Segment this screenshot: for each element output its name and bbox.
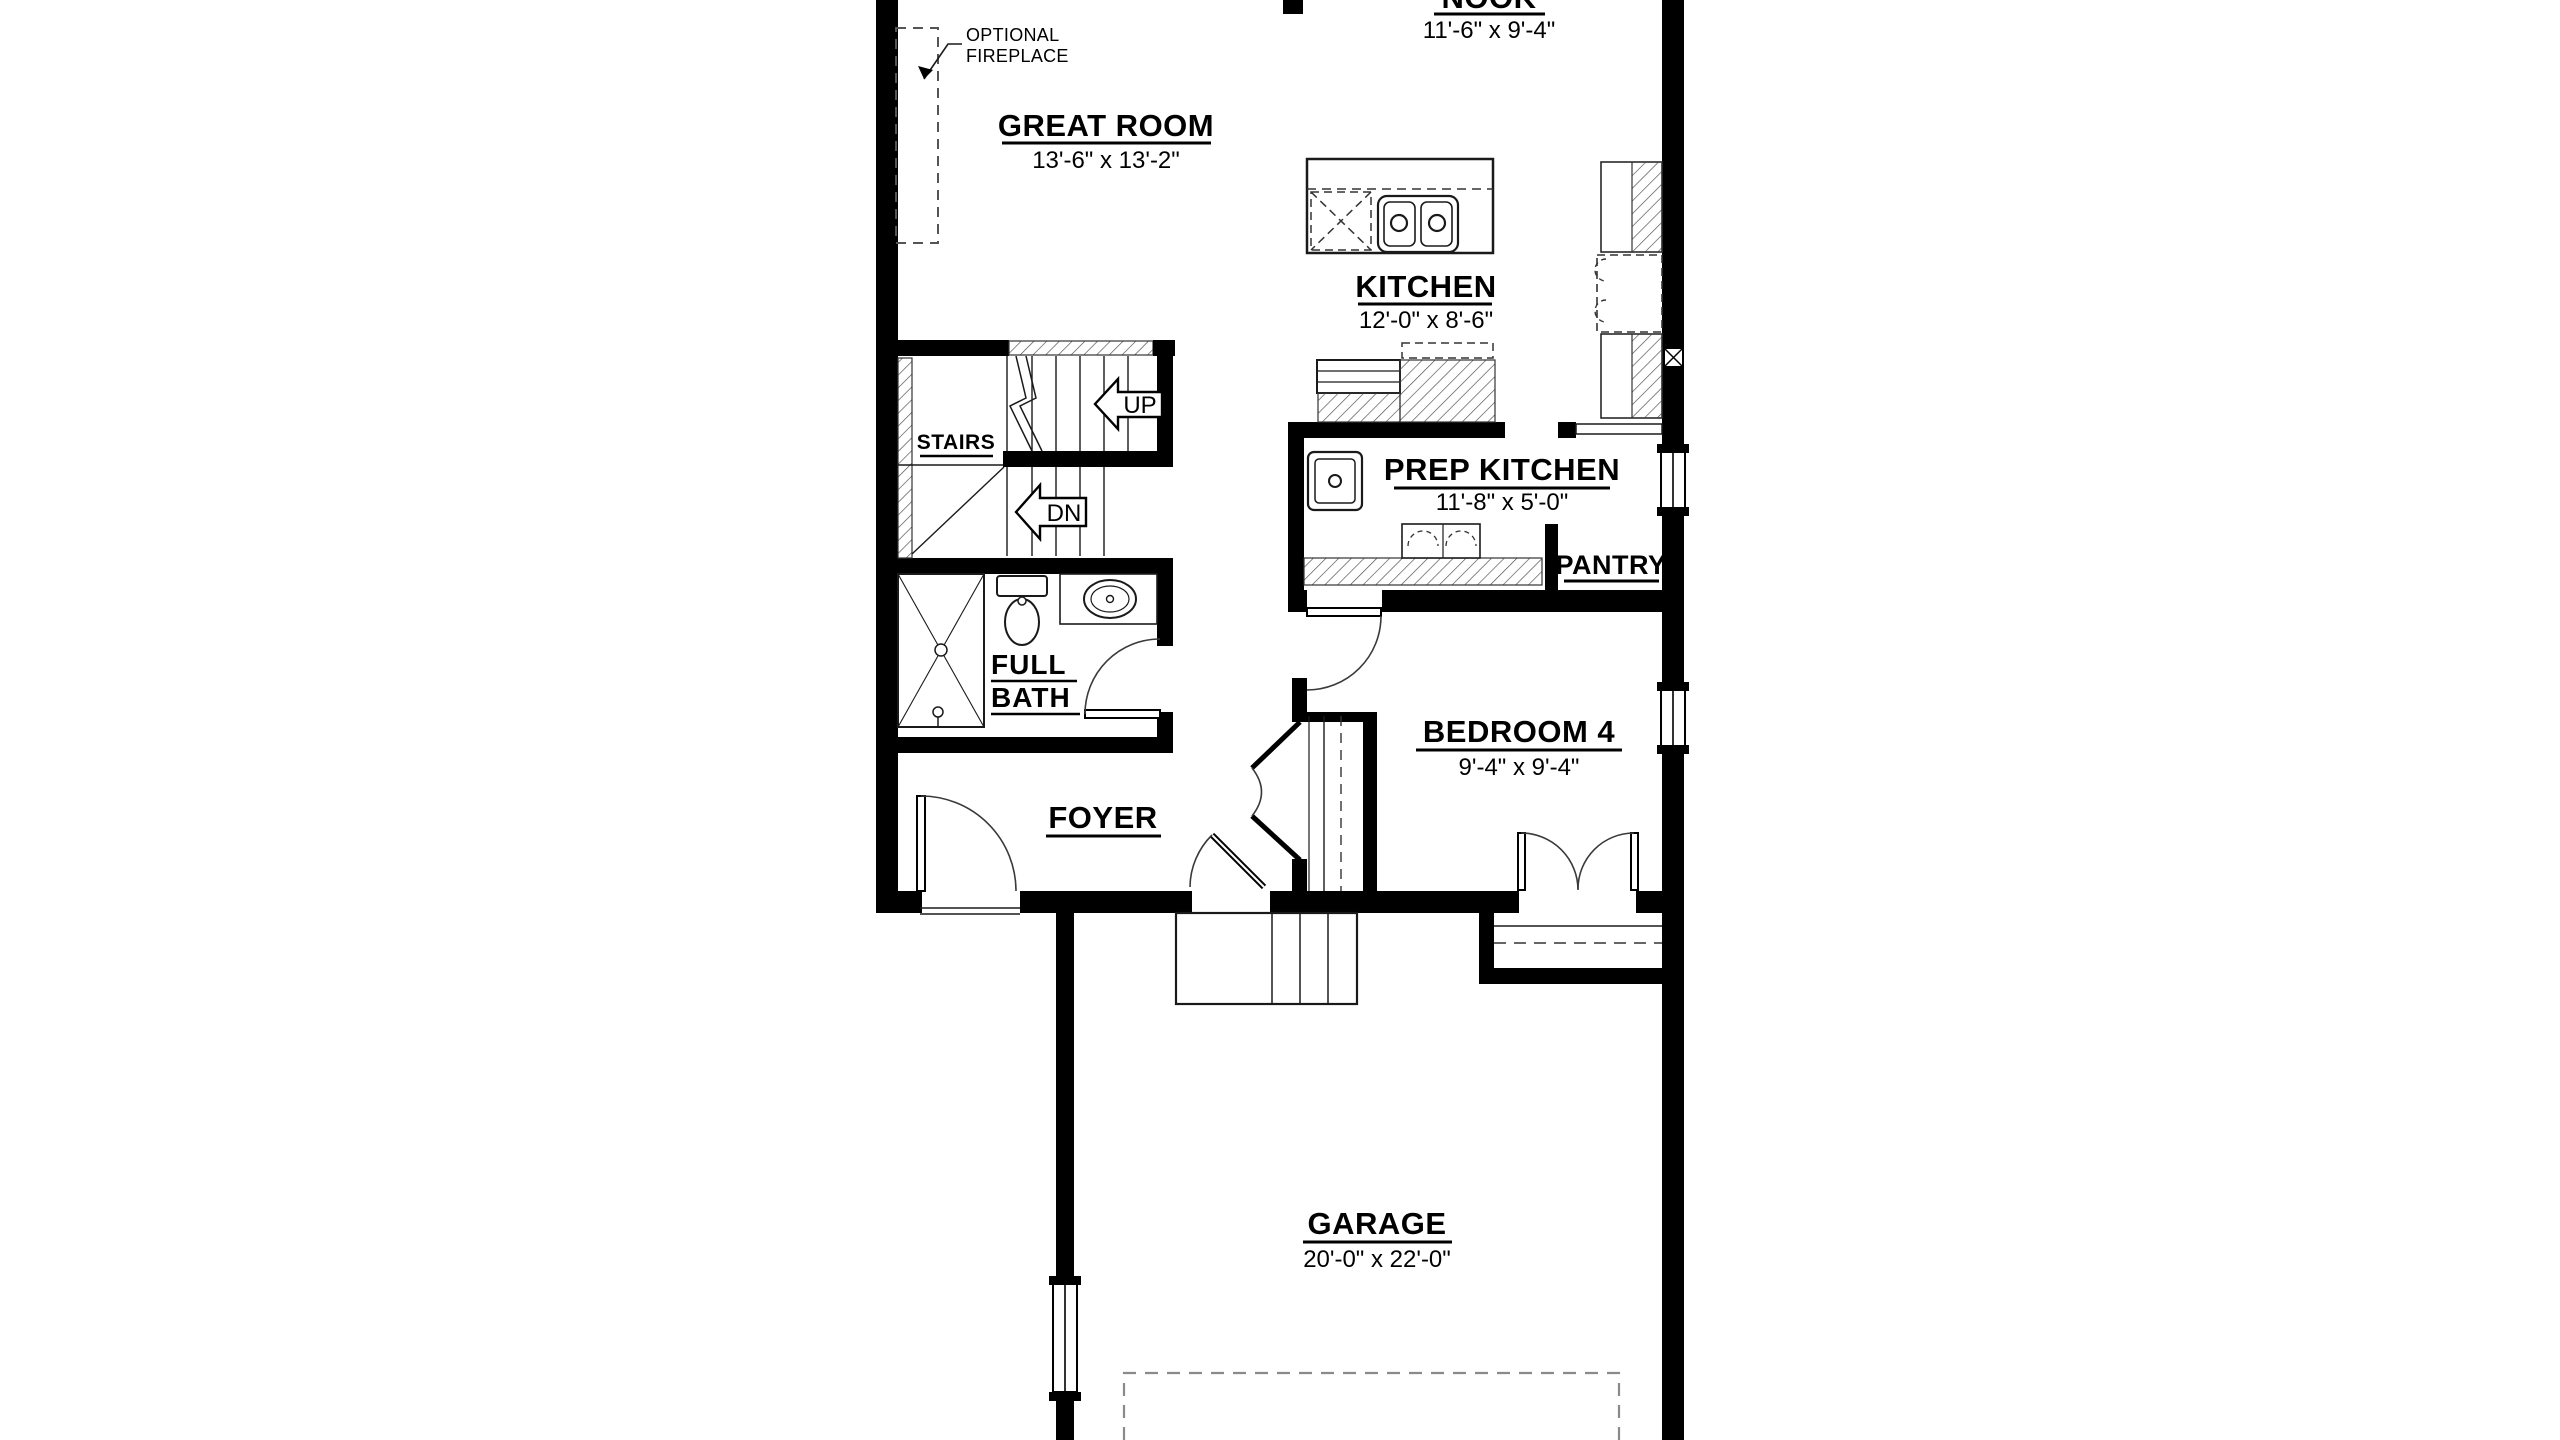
garage-window-icon bbox=[1049, 1276, 1081, 1401]
fireplace-note-line2: FIREPLACE bbox=[966, 46, 1069, 66]
prep-kitchen-window-icon bbox=[1657, 444, 1689, 516]
bedroom-4-dims: 9'-4" x 9'-4" bbox=[1459, 754, 1580, 781]
floor-plan-page: OPTIONAL FIREPLACE NOOK 11'-6" x 9'-4" G… bbox=[0, 0, 2560, 1440]
electrical-box-icon bbox=[1664, 348, 1683, 367]
counter-hatch-bottom bbox=[1304, 558, 1542, 585]
stair-diagonal-line bbox=[912, 467, 1004, 554]
full-bath-label-line1: FULL bbox=[991, 649, 1067, 680]
front-door bbox=[917, 796, 1020, 914]
fireplace-dashed-outline bbox=[896, 28, 938, 243]
fireplace-leader-line bbox=[924, 44, 962, 79]
stair-wall-hatch bbox=[898, 358, 912, 558]
bedroom-closet bbox=[1494, 833, 1662, 943]
bedroom-4-label: BEDROOM 4 bbox=[1423, 714, 1616, 749]
nook-dims: 11'-6" x 9'-4" bbox=[1423, 17, 1555, 44]
great-room: GREAT ROOM 13'-6" x 13'-2" bbox=[998, 108, 1214, 174]
floor-plan-drawing: OPTIONAL FIREPLACE NOOK 11'-6" x 9'-4" G… bbox=[0, 0, 2560, 1440]
tall-cabinet-lower bbox=[1601, 334, 1662, 418]
up-arrow-label: UP bbox=[1123, 392, 1156, 419]
prep-kitchen-label: PREP KITCHEN bbox=[1384, 452, 1620, 487]
closet-door-leaf-bottom bbox=[1252, 816, 1300, 860]
great-room-dims: 13'-6" x 13'-2" bbox=[1032, 147, 1180, 174]
cased-opening bbox=[1576, 424, 1662, 434]
pantry-label: PANTRY bbox=[1556, 550, 1667, 580]
garage-dims: 20'-0" x 22'-0" bbox=[1303, 1246, 1451, 1273]
garage-entry-door bbox=[1190, 835, 1264, 887]
counter-hatch-right bbox=[1400, 360, 1495, 422]
prep-kitchen-dims: 11'-8" x 5'-0" bbox=[1436, 489, 1568, 516]
kitchen-dims: 12'-0" x 8'-6" bbox=[1359, 307, 1493, 334]
counter-hatch-left bbox=[1318, 393, 1400, 422]
bedroom-door bbox=[1307, 608, 1381, 690]
vanity-sink-icon bbox=[1060, 574, 1157, 624]
bath-door bbox=[1085, 639, 1160, 718]
down-arrow-label: DN bbox=[1047, 500, 1082, 527]
prep-kitchen: PREP KITCHEN 11'-8" x 5'-0" bbox=[1304, 343, 1620, 585]
bedroom-window-icon bbox=[1657, 682, 1689, 754]
kitchen-island bbox=[1307, 159, 1493, 253]
shower-icon bbox=[898, 574, 984, 727]
kitchen-label: KITCHEN bbox=[1355, 269, 1496, 304]
garage-steps bbox=[1176, 913, 1357, 1004]
hood-dashed-outline bbox=[1402, 343, 1493, 358]
garage-label: GARAGE bbox=[1307, 1206, 1446, 1241]
down-arrow-icon: DN bbox=[1016, 485, 1086, 539]
toilet-icon bbox=[997, 576, 1047, 645]
nook: NOOK 11'-6" x 9'-4" bbox=[1423, 0, 1555, 44]
stairs-label: STAIRS bbox=[917, 431, 995, 454]
undercounter-appliance-icon bbox=[1402, 524, 1480, 558]
parking-dashed-outline bbox=[1124, 1373, 1619, 1440]
stair-break-line bbox=[1010, 356, 1042, 451]
pantry: PANTRY bbox=[1556, 550, 1667, 581]
wall-oven-icon bbox=[1595, 255, 1662, 332]
range-icon bbox=[1317, 360, 1400, 393]
full-bath-label-line2: BATH bbox=[991, 682, 1071, 713]
closet-door-leaf-top bbox=[1252, 722, 1300, 768]
foyer-label: FOYER bbox=[1048, 800, 1157, 835]
garage: GARAGE 20'-0" x 22'-0" bbox=[1049, 913, 1619, 1440]
full-bath: FULL BATH bbox=[898, 574, 1160, 727]
stair-railing-hatch bbox=[1009, 341, 1153, 355]
prep-sink-icon bbox=[1308, 452, 1362, 510]
great-room-label: GREAT ROOM bbox=[998, 108, 1214, 143]
fireplace-note-line1: OPTIONAL bbox=[966, 25, 1059, 45]
double-sink-icon bbox=[1378, 196, 1458, 252]
tall-cabinet-upper bbox=[1601, 162, 1662, 252]
